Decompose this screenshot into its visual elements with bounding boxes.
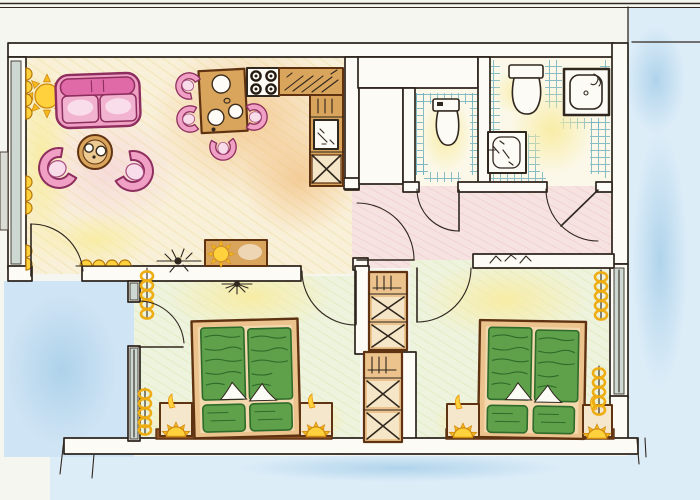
floor-plan-canvas: [0, 0, 700, 500]
duvet: [201, 327, 246, 400]
wall-bedroom2-top: [473, 254, 614, 268]
double-bed: [478, 320, 586, 439]
dining-chair: [246, 104, 267, 130]
shaft-wall: [359, 88, 403, 184]
duct-above-wc: [358, 57, 478, 88]
shower-tray: [564, 69, 609, 115]
stove: [247, 68, 279, 96]
pillow: [250, 403, 293, 431]
wall-jamb-notch: [344, 178, 359, 189]
coffee-table: [78, 135, 112, 169]
pillow: [203, 404, 246, 432]
terrace: [4, 281, 134, 457]
balcony-ledge: [0, 152, 8, 230]
wall-wc-left: [403, 88, 415, 184]
sideboard: [205, 240, 267, 268]
kitchen-sink: [314, 120, 338, 149]
wardrobe-bedroom1: [364, 352, 402, 442]
floor-plan-drawing: [0, 0, 700, 500]
wall-divider-lower: [402, 352, 416, 440]
counter-run: [310, 95, 343, 186]
plate: [212, 75, 231, 94]
base-cabinet-x: [312, 155, 341, 183]
sofa: [55, 73, 141, 129]
cup: [96, 146, 106, 156]
dining-table: [198, 69, 247, 133]
wall-bottom: [64, 438, 638, 454]
duvet: [488, 327, 532, 400]
terrace-wash-blob: [7, 295, 117, 445]
washbasin: [488, 132, 526, 173]
plate: [207, 109, 224, 126]
cup: [85, 144, 93, 152]
double-bed: [191, 319, 300, 439]
pillow: [487, 405, 527, 433]
living-glow: [35, 212, 155, 268]
duvet: [248, 328, 293, 400]
wall-divider-upper: [355, 266, 369, 354]
sideboard-lamp-icon: [207, 240, 234, 267]
plate: [228, 104, 243, 119]
wall-kitchen-right: [345, 57, 359, 190]
glazing-left-wall: [11, 61, 21, 264]
wall-living-bottom: [82, 266, 301, 281]
glazing-bedroom1-upper: [130, 283, 138, 300]
wall-top: [8, 43, 614, 57]
counter-drainer: [279, 68, 343, 95]
wardrobe-bedroom2: [369, 272, 407, 350]
blue-wash-blob: [235, 454, 565, 482]
pillow: [533, 406, 574, 434]
wall-bath-bottom: [458, 182, 547, 192]
duvet: [535, 330, 579, 402]
blue-wash-blob: [632, 130, 688, 390]
wall-right-upper: [612, 43, 628, 264]
